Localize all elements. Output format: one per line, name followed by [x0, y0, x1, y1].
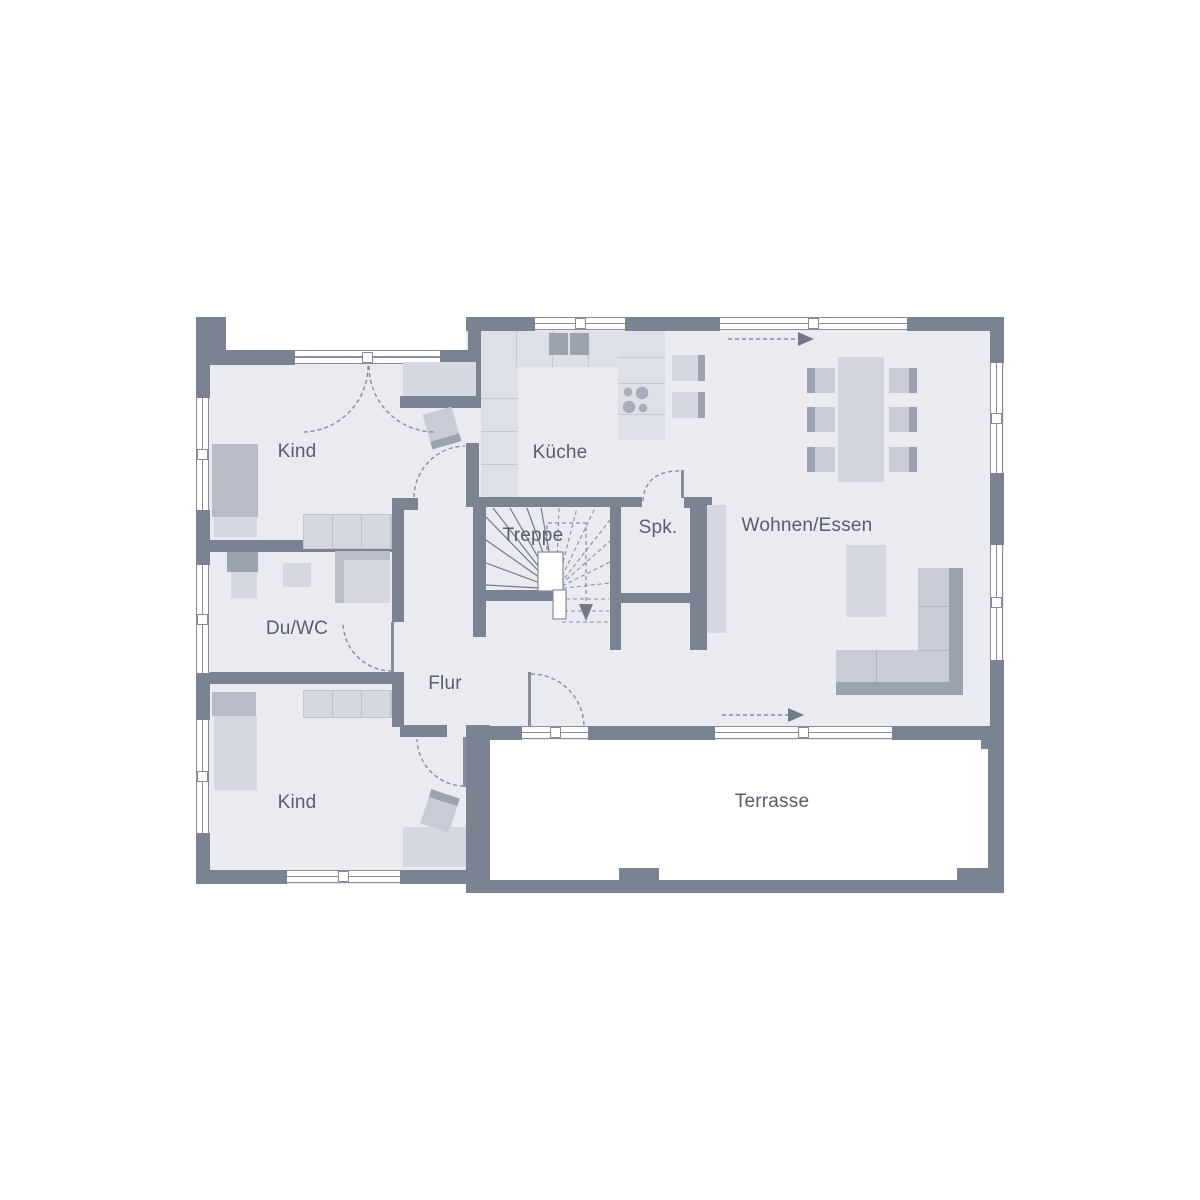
- wardrobe: [403, 362, 476, 396]
- room-label-du-wc: Du/WC: [266, 618, 328, 640]
- floor-plan: Kind Küche Treppe Spk. Wohnen/Essen Du/W…: [0, 0, 1200, 1200]
- window: [196, 720, 209, 833]
- wall-kind2-terrace: [466, 725, 490, 884]
- terrace-edge-bottom: [466, 880, 1004, 893]
- window: [196, 398, 209, 510]
- door-leaf-terrace: [528, 672, 531, 726]
- shelf: [707, 505, 726, 633]
- terrace-step-mid: [619, 868, 659, 880]
- wall-duwc-right: [392, 498, 404, 622]
- chair: [889, 368, 917, 393]
- stove-burners: [618, 383, 665, 415]
- wall-right-b: [990, 473, 1004, 545]
- wall-bottom-main-c: [892, 726, 1004, 740]
- window: [287, 870, 400, 883]
- bed: [212, 444, 258, 517]
- wall-bottom-left-a: [196, 870, 287, 884]
- wall-left-b: [196, 510, 210, 565]
- wall-top-main-a: [466, 317, 535, 331]
- room-label-flur: Flur: [428, 673, 462, 695]
- wall-duwc-kind2: [210, 672, 404, 684]
- terrace-step-right: [957, 868, 988, 880]
- washbasin-counter: [227, 552, 258, 572]
- room-label-wohnen-essen: Wohnen/Essen: [742, 515, 873, 537]
- dresser: [303, 514, 392, 549]
- door-leaf-spk: [681, 470, 684, 498]
- shower-tray: [344, 560, 390, 603]
- washbasin: [231, 572, 257, 598]
- wall-top-main-b: [625, 317, 720, 331]
- chair: [889, 447, 917, 472]
- room-label-spk: Spk.: [639, 517, 678, 539]
- kitchen-seat: [672, 355, 705, 381]
- terrace-step-top-right: [981, 740, 988, 749]
- sofa-cushions-horizontal: [836, 650, 918, 682]
- kitchen-sink: [549, 333, 589, 355]
- wall-stair-top: [466, 497, 642, 507]
- chair: [807, 447, 835, 472]
- room-label-kind-2: Kind: [278, 792, 317, 814]
- wall-spk-bottom: [610, 593, 693, 603]
- sliding-window: [715, 726, 892, 739]
- bed: [214, 716, 257, 790]
- kitchen-seat: [672, 392, 705, 418]
- door-leaf-duwc: [391, 622, 394, 672]
- wardrobe: [403, 827, 466, 867]
- wall-kind1-south-stub: [393, 498, 418, 510]
- lowboard: [846, 545, 886, 617]
- sofa-backrest-horizontal: [836, 682, 949, 695]
- room-label-treppe: Treppe: [503, 525, 564, 547]
- wall-left-a: [196, 365, 210, 398]
- window: [990, 363, 1003, 473]
- sliding-window: [720, 317, 907, 330]
- wall-stair-bottom-left: [473, 590, 558, 601]
- door-leaf-kind2: [463, 737, 466, 787]
- wall-right-a: [990, 317, 1004, 363]
- window: [990, 545, 1003, 660]
- dining-table: [838, 357, 884, 482]
- wall-spk-right: [690, 508, 707, 650]
- bed-head: [212, 692, 256, 716]
- wall-flur-west-lower: [392, 672, 404, 727]
- wall-bottom-main-b: [588, 726, 715, 740]
- window: [535, 317, 625, 330]
- toilet: [283, 563, 311, 587]
- chair: [889, 407, 917, 432]
- room-label-kueche: Küche: [533, 442, 588, 464]
- wall-kind2-north-stub: [400, 725, 447, 737]
- wall-left-c: [196, 673, 210, 720]
- sofa-backrest-vertical: [949, 568, 963, 695]
- terrace-edge-right: [988, 740, 1004, 893]
- dresser: [303, 690, 392, 718]
- room-label-terrasse: Terrasse: [735, 791, 809, 813]
- wall-treppe-spk: [610, 507, 621, 650]
- terrace-door: [522, 726, 588, 739]
- wall-top-left-a: [196, 350, 295, 365]
- kitchen-counter-left: [481, 367, 518, 497]
- bed-foot: [214, 517, 257, 537]
- sofa-cushions-vertical: [918, 568, 949, 695]
- wall-stair-left: [473, 507, 486, 637]
- room-label-kind-1: Kind: [278, 441, 317, 463]
- chair: [807, 407, 835, 432]
- window: [196, 565, 209, 673]
- chair: [807, 368, 835, 393]
